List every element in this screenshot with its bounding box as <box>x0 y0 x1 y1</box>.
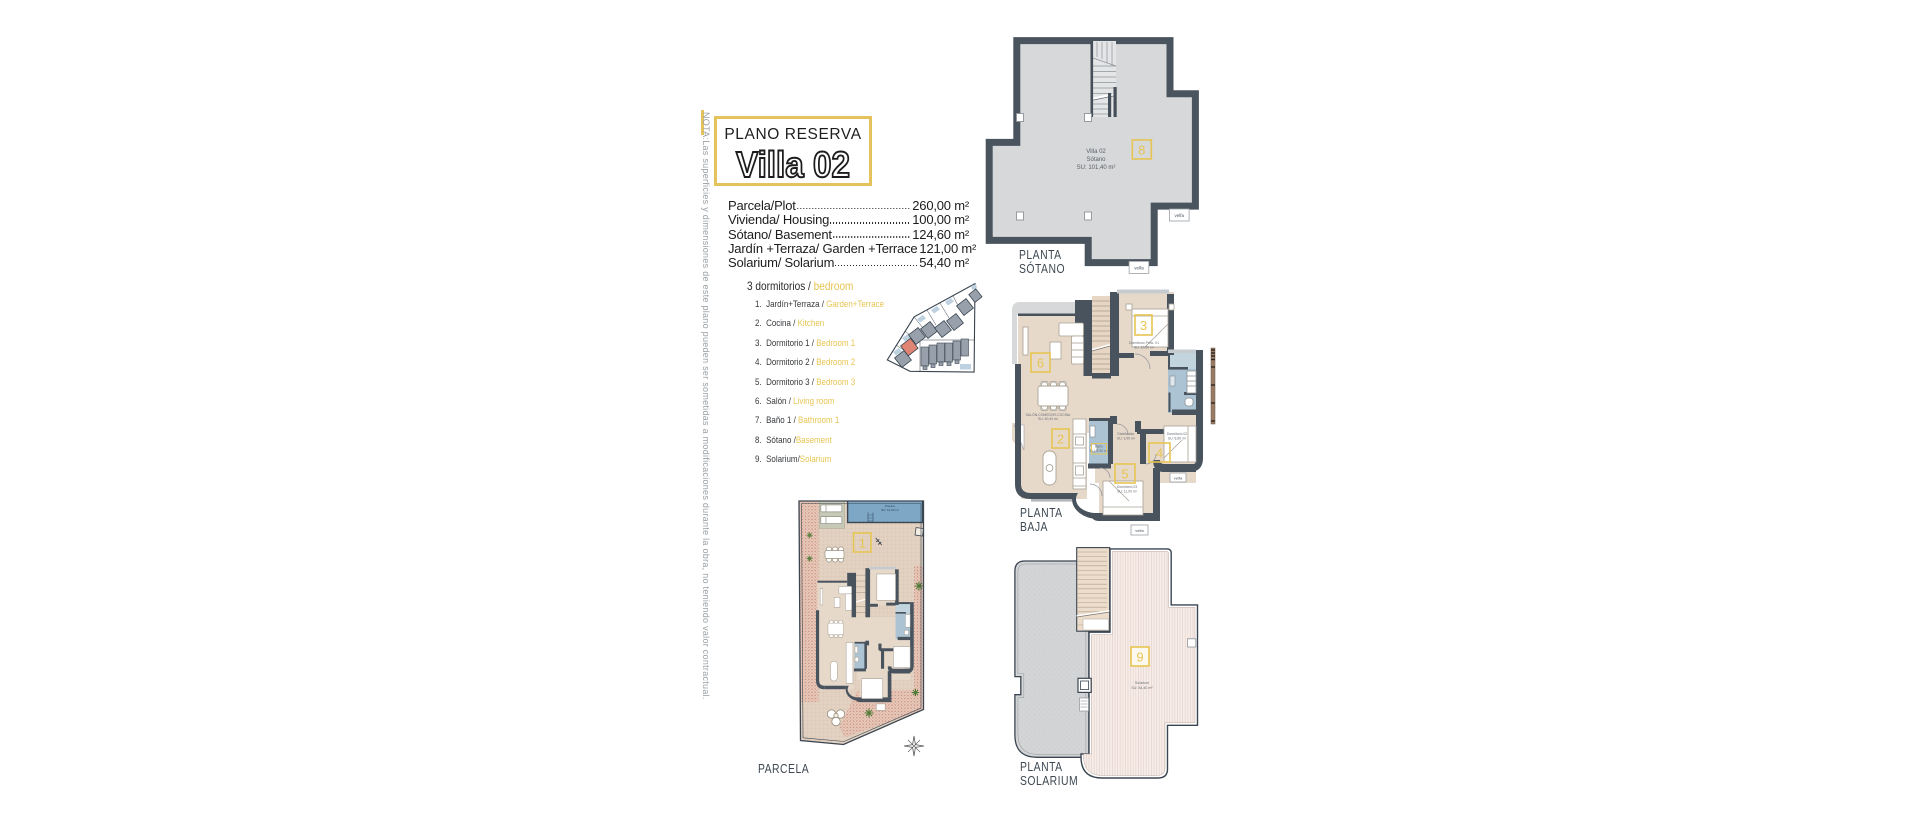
svg-text:velfa: velfa <box>1174 213 1184 218</box>
svg-text:Villa 02: Villa 02 <box>736 144 850 185</box>
svg-text:2: 2 <box>1057 432 1064 447</box>
svg-text:SU: 14,50 m²: SU: 14,50 m² <box>881 508 899 512</box>
svg-text:Solarium: Solarium <box>1135 681 1149 685</box>
svg-text:Villa 02: Villa 02 <box>1086 149 1106 155</box>
svg-text:velfa: velfa <box>1174 476 1183 481</box>
svg-text:SU: 11,00 m²: SU: 11,00 m² <box>1117 490 1138 494</box>
svg-text:SU: 54,40 m²: SU: 54,40 m² <box>1131 686 1153 690</box>
svg-text:9: 9 <box>1136 650 1143 665</box>
svg-text:3: 3 <box>1140 318 1147 333</box>
svg-text:SU: 3,90 m²: SU: 3,90 m² <box>1117 437 1136 441</box>
svg-text:SU: 101,40 m²: SU: 101,40 m² <box>1077 165 1116 171</box>
svg-text:SU: 10,60 m²: SU: 10,60 m² <box>1134 346 1155 350</box>
svg-text:4: 4 <box>1156 446 1163 461</box>
svg-text:SU: 40,40 m²: SU: 40,40 m² <box>1038 417 1059 421</box>
svg-text:8: 8 <box>1138 143 1145 158</box>
svg-text:SU: 8,80 m²: SU: 8,80 m² <box>1168 437 1187 441</box>
svg-text:6: 6 <box>1037 356 1044 371</box>
svg-text:1: 1 <box>859 536 866 551</box>
svg-text:Dormitorio 03: Dormitorio 03 <box>1117 485 1137 489</box>
svg-text:velfa: velfa <box>1135 528 1144 533</box>
svg-text:velfa: velfa <box>1134 265 1144 270</box>
svg-text:Dormitorio Princ. 01: Dormitorio Princ. 01 <box>1129 341 1159 345</box>
svg-text:Dormitorio 02: Dormitorio 02 <box>1167 432 1187 436</box>
svg-text:Distribuidor: Distribuidor <box>1117 432 1135 436</box>
svg-text:5: 5 <box>1121 467 1128 482</box>
svg-text:Sótano: Sótano <box>1086 157 1106 163</box>
